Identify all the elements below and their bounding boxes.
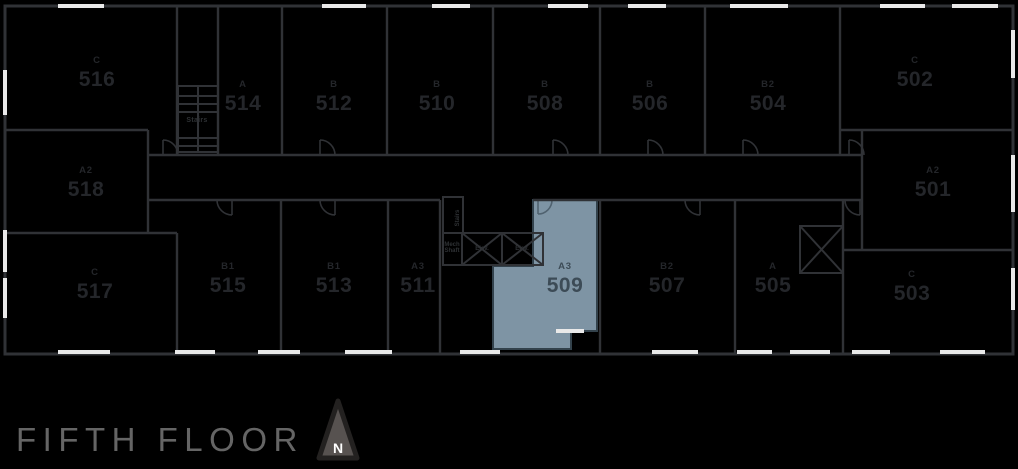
unit-number: 518 — [68, 179, 105, 200]
elevator-1-label: Elev. — [475, 246, 489, 252]
unit-type: A2 — [79, 166, 93, 176]
floor-plan: C 516 A 514 B 512 B 510 B 508 B 506 B2 5… — [0, 0, 1018, 362]
stairs-mid-label: Stairs — [455, 210, 461, 227]
unit-518[interactable]: A2 518 — [68, 166, 105, 200]
stairs-top-label: Stairs — [186, 117, 207, 124]
unit-type: B — [646, 80, 654, 90]
unit-number: 504 — [750, 93, 787, 114]
building-core — [178, 86, 843, 273]
unit-507[interactable]: B2 507 — [649, 262, 686, 296]
unit-503[interactable]: C 503 — [894, 270, 931, 304]
unit-509[interactable]: A3 509 — [547, 262, 584, 296]
floorplan-page: C 516 A 514 B 512 B 510 B 508 B 506 B2 5… — [0, 0, 1018, 465]
unit-number: 502 — [897, 69, 934, 90]
unit-number: 517 — [77, 281, 114, 302]
floorplan-drawing — [0, 0, 1018, 362]
unit-number: 511 — [400, 275, 435, 296]
floor-title: FIFTH FLOOR — [16, 421, 304, 459]
unit-type: A2 — [926, 166, 940, 176]
unit-510[interactable]: B 510 — [419, 80, 456, 114]
unit-511[interactable]: A3 511 — [400, 262, 435, 296]
unit-number: 506 — [632, 93, 669, 114]
unit-type: B2 — [660, 262, 674, 272]
unit-504[interactable]: B2 504 — [750, 80, 787, 114]
unit-517[interactable]: C 517 — [77, 268, 114, 302]
unit-type: B — [433, 80, 441, 90]
unit-type: A3 — [411, 262, 425, 272]
mech-shaft-label: Mech Shaft — [442, 242, 462, 255]
unit-number: 503 — [894, 283, 931, 304]
unit-512[interactable]: B 512 — [316, 80, 353, 114]
unit-type: C — [93, 56, 101, 66]
unit-number: 509 — [547, 275, 584, 296]
north-compass: N — [300, 392, 376, 464]
stairs-bottom — [800, 226, 843, 273]
unit-515[interactable]: B1 515 — [210, 262, 247, 296]
unit-508[interactable]: B 508 — [527, 80, 564, 114]
unit-number: 512 — [316, 93, 353, 114]
unit-type: B — [330, 80, 338, 90]
unit-type: A — [239, 80, 247, 90]
unit-type: B2 — [761, 80, 775, 90]
elevator-2-label: Elev. — [515, 246, 529, 252]
unit-type: B1 — [221, 262, 235, 272]
unit-type: C — [911, 56, 919, 66]
door-arcs — [163, 140, 864, 215]
unit-type: C — [908, 270, 916, 280]
unit-501[interactable]: A2 501 — [915, 166, 952, 200]
unit-502[interactable]: C 502 — [897, 56, 934, 90]
unit-516[interactable]: C 516 — [79, 56, 116, 90]
unit-number: 508 — [527, 93, 564, 114]
unit-509-window — [556, 329, 584, 333]
unit-number: 501 — [915, 179, 952, 200]
unit-type: A — [769, 262, 777, 272]
unit-number: 507 — [649, 275, 686, 296]
north-letter: N — [333, 440, 343, 456]
unit-number: 513 — [316, 275, 353, 296]
unit-number: 505 — [755, 275, 792, 296]
unit-type: B1 — [327, 262, 341, 272]
unit-type: C — [91, 268, 99, 278]
unit-505[interactable]: A 505 — [755, 262, 792, 296]
unit-type: A3 — [558, 262, 572, 272]
unit-513[interactable]: B1 513 — [316, 262, 353, 296]
unit-number: 516 — [79, 69, 116, 90]
unit-number: 514 — [225, 93, 262, 114]
unit-506[interactable]: B 506 — [632, 80, 669, 114]
unit-514[interactable]: A 514 — [225, 80, 262, 114]
unit-type: B — [541, 80, 549, 90]
unit-number: 515 — [210, 275, 247, 296]
unit-number: 510 — [419, 93, 456, 114]
